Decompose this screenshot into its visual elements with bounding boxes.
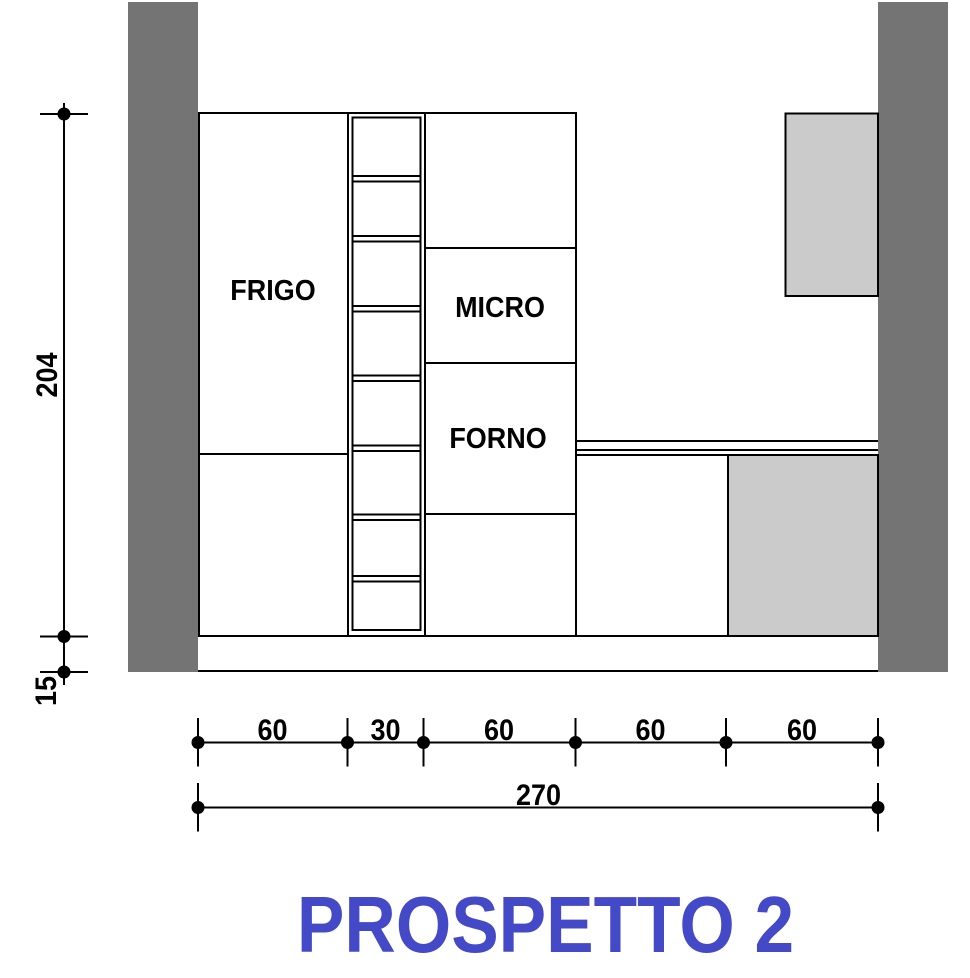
- svg-text:60: 60: [484, 714, 514, 748]
- svg-text:30: 30: [370, 714, 400, 748]
- svg-text:270: 270: [516, 779, 561, 813]
- svg-text:PROSPETTO 2: PROSPETTO 2: [297, 880, 794, 970]
- svg-text:FORNO: FORNO: [449, 422, 546, 454]
- svg-text:60: 60: [257, 714, 287, 748]
- svg-text:60: 60: [635, 714, 665, 748]
- svg-text:FRIGO: FRIGO: [230, 274, 315, 306]
- svg-text:204: 204: [31, 352, 65, 397]
- svg-text:15: 15: [30, 676, 64, 706]
- svg-text:60: 60: [787, 714, 817, 748]
- svg-text:MICRO: MICRO: [455, 291, 545, 323]
